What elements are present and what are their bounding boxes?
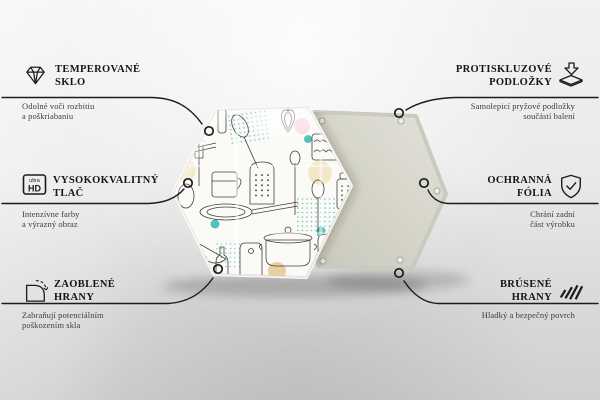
feature-tempered-glass: TEMPEROVANÉ SKLO Odolné voči rozbitiu a … [22, 62, 187, 121]
svg-text:HD: HD [28, 184, 41, 194]
feature-anti-slip-pads: PROTISKLUZOVÉ PODLOŽKY Samolepicí pryžov… [384, 62, 584, 121]
feature-description: Hladký a bezpečný povrch [384, 310, 584, 320]
feature-description: Zabraňují potenciálním poškozením skla [22, 310, 187, 330]
feature-description: Samolepicí pryžové podložky součástí bal… [384, 101, 584, 121]
feature-description: Odolné voči rozbitiu a poškriabaniu [22, 101, 187, 121]
feature-title: HRANY [500, 291, 552, 304]
feature-description: Intenzívne farby a výrazný obraz [22, 209, 197, 229]
feature-title: ZAOBLENÉ [54, 278, 115, 291]
feature-high-quality-print: ultra HD VYSOKOKVALITNÝ TLAČ Intenzívne … [22, 173, 197, 229]
feature-title: PODLOŽKY [456, 76, 552, 89]
feature-ground-edges: BRÚSENÉ HRANY Hladký a bezpečný povrch [384, 277, 584, 320]
feature-title: PROTISKLUZOVÉ [456, 63, 552, 76]
feature-title: FÓLIA [487, 187, 552, 200]
rounded-corner-icon [22, 277, 48, 303]
feature-title: HRANY [54, 291, 115, 304]
feature-title: SKLO [55, 76, 140, 89]
ultra-hd-icon: ultra HD [22, 173, 47, 196]
feature-protective-film: OCHRANNÁ FÓLIA Chrání zadní část výrobku [384, 173, 584, 229]
feature-title: TEMPEROVANÉ [55, 63, 140, 76]
feature-description: Chrání zadní část výrobku [384, 209, 584, 229]
feature-title: BRÚSENÉ [500, 278, 552, 291]
feature-title: TLAČ [53, 187, 159, 200]
shield-check-icon [558, 173, 584, 200]
feature-title: OCHRANNÁ [487, 174, 552, 187]
diamond-icon [22, 62, 49, 88]
feature-rounded-edges: ZAOBLENÉ HRANY Zabraňují potenciálním po… [22, 277, 187, 330]
anti-slip-pad-icon [558, 62, 584, 88]
ground-edges-icon [558, 277, 584, 303]
feature-title: VYSOKOKVALITNÝ [53, 174, 159, 187]
infographic-canvas: TEMPEROVANÉ SKLO Odolné voči rozbitiu a … [0, 0, 600, 400]
